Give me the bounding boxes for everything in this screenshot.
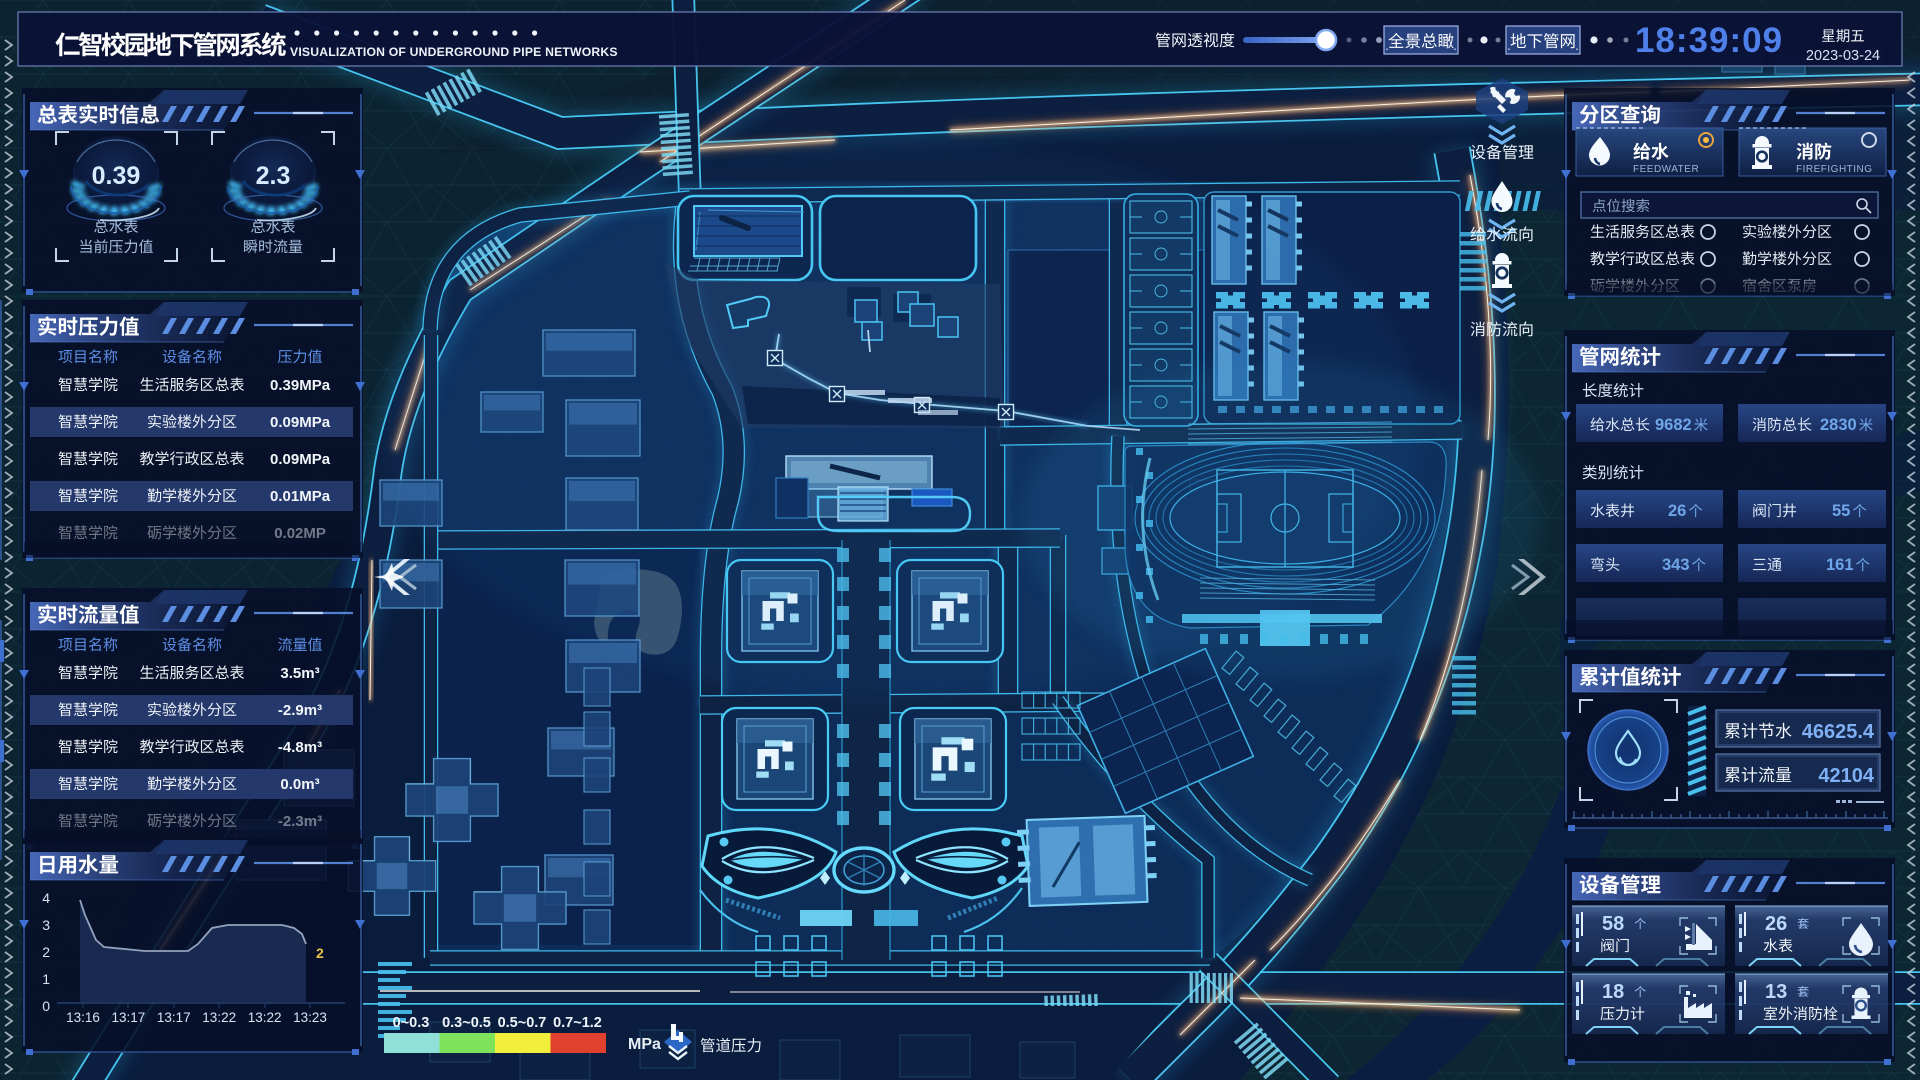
svg-text:161: 161 [1826,556,1854,574]
svg-text:2: 2 [42,944,50,960]
svg-text:13: 13 [1765,981,1787,1003]
svg-text:13:17: 13:17 [157,1010,191,1025]
svg-text:MPa: MPa [628,1036,661,1053]
svg-text:13:22: 13:22 [202,1010,236,1025]
svg-text:2830: 2830 [1820,416,1857,434]
svg-text:0.09MPa: 0.09MPa [270,451,331,468]
svg-text:26: 26 [1668,502,1686,520]
svg-text:.: . [1453,37,1457,53]
svg-text:13:16: 13:16 [66,1010,100,1025]
svg-text:FIREFIGHTING: FIREFIGHTING [1796,164,1873,175]
svg-text:0.0m³: 0.0m³ [280,776,319,793]
svg-text:2: 2 [316,945,324,961]
svg-text:0.01MPa: 0.01MPa [270,488,331,505]
svg-text:58: 58 [1602,913,1624,935]
svg-text:0.39: 0.39 [92,162,141,190]
svg-text:42104: 42104 [1818,765,1874,787]
svg-text:18:39:09: 18:39:09 [1635,21,1783,60]
svg-text:3: 3 [42,917,50,933]
svg-text:0.39MPa: 0.39MPa [270,377,331,394]
svg-text:1: 1 [42,971,50,987]
svg-text:9682: 9682 [1655,416,1692,434]
svg-text:0~0.3: 0~0.3 [393,1015,430,1031]
svg-text:-2.3m³: -2.3m³ [278,813,322,830]
svg-text:0.7~1.2: 0.7~1.2 [553,1015,602,1031]
svg-text:13:17: 13:17 [112,1010,146,1025]
svg-text:46625.4: 46625.4 [1802,721,1875,743]
svg-text:55: 55 [1832,502,1850,520]
svg-text:4: 4 [42,890,50,906]
svg-text:18: 18 [1602,981,1624,1003]
svg-text:.: . [1507,37,1511,53]
svg-text:VISUALIZATION OF UNDERGROUND P: VISUALIZATION OF UNDERGROUND PIPE NETWOR… [290,45,618,59]
svg-text:FEEDWATER: FEEDWATER [1633,164,1699,175]
svg-text:13:22: 13:22 [248,1010,282,1025]
svg-text:13:23: 13:23 [293,1010,327,1025]
svg-text:0: 0 [42,998,50,1014]
svg-text:3.5m³: 3.5m³ [280,665,319,682]
svg-text:2.3: 2.3 [256,162,291,190]
svg-text:0.02MP: 0.02MP [274,525,326,542]
svg-text:2023-03-24: 2023-03-24 [1806,48,1880,64]
svg-text:26: 26 [1765,913,1787,935]
svg-text:0.5~0.7: 0.5~0.7 [498,1015,547,1031]
svg-text:-2.9m³: -2.9m³ [278,702,322,719]
svg-text:343: 343 [1662,556,1690,574]
svg-text:0.3~0.5: 0.3~0.5 [442,1015,491,1031]
svg-text:0.09MPa: 0.09MPa [270,414,331,431]
svg-text:.: . [1385,37,1389,53]
svg-text:.: . [1575,37,1579,53]
svg-text:-4.8m³: -4.8m³ [278,739,322,756]
